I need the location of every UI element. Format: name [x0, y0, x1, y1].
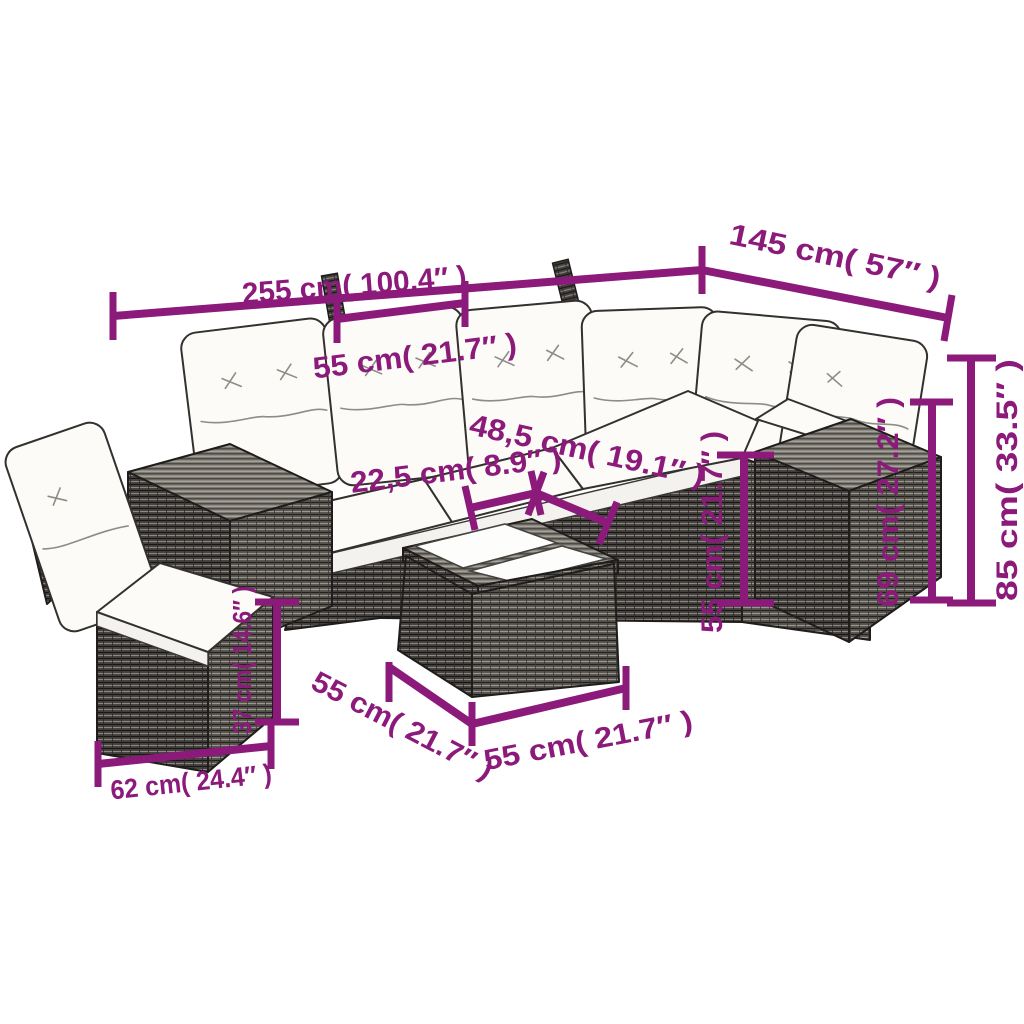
dim-seat-front-height-label: 55 cm( 21.7″ ) [696, 431, 729, 633]
dim-armrest-box-height-label: 69 cm( 27.2″ ) [872, 397, 905, 607]
dim-chair-seat-height-label: 37 cm( 14.6″ ) [227, 586, 257, 734]
dim-total-height: 85 cm( 33.5″ ) [947, 358, 1024, 603]
dim-total-height-label: 85 cm( 33.5″ ) [991, 359, 1024, 601]
product-dimension-diagram: 255 cm( 100.4″ ) 145 cm( 57″ ) 55 cm( 21… [0, 0, 1024, 1024]
right-armrest-box [755, 419, 941, 642]
coffee-table [398, 519, 619, 697]
diagram-canvas: 255 cm( 100.4″ ) 145 cm( 57″ ) 55 cm( 21… [0, 0, 1024, 1024]
